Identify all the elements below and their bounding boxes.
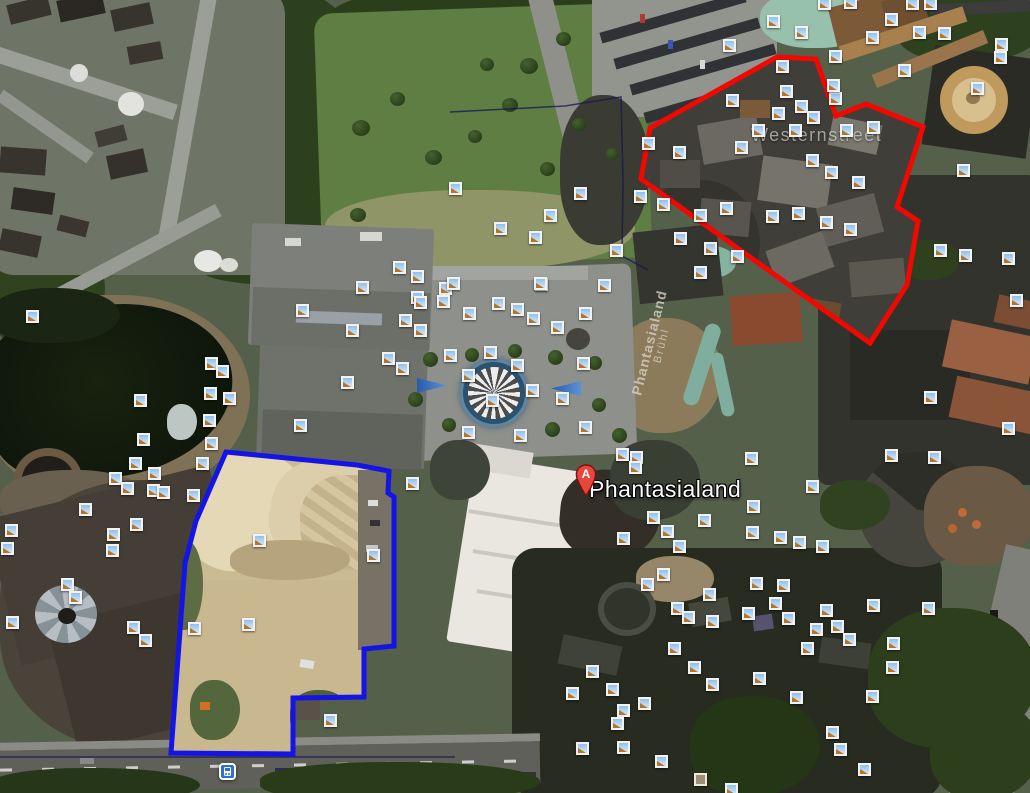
tree [390,92,405,106]
photo-icon[interactable] [61,578,74,591]
photo-icon[interactable] [629,461,642,474]
photo-icon[interactable] [694,209,707,222]
photo-icon[interactable] [463,307,476,320]
photo-icon[interactable] [747,500,760,513]
photo-icon[interactable] [69,591,82,604]
bus-glyph [224,767,231,776]
tree [465,348,479,362]
photo-icon[interactable] [806,154,819,167]
photo-icon[interactable] [79,503,92,516]
photo-icon[interactable] [449,182,462,195]
umbrella [948,524,957,533]
photo-icon[interactable] [825,166,838,179]
photo-icon[interactable] [720,202,733,215]
tree [423,352,438,367]
photo-icon[interactable] [204,387,217,400]
photo-icon[interactable] [789,124,802,137]
tree [425,150,442,165]
building-roof-detail [360,232,382,241]
photo-icon[interactable] [534,277,547,290]
street-label: Westernstreet [751,125,882,146]
photo-icon[interactable] [494,222,507,235]
tree [592,398,606,412]
tree [520,58,538,74]
photo-icon[interactable] [1002,252,1015,265]
photo-icon[interactable] [725,783,738,793]
photo-icon[interactable] [661,525,674,538]
photo-icon[interactable] [657,198,670,211]
satellite-map-view[interactable]: Phantasialand Brühl Westernstreet A Phan… [0,0,1030,793]
photo-icon[interactable] [772,107,785,120]
photo-icon[interactable] [130,518,143,531]
photo-icon[interactable] [341,376,354,389]
tree [442,418,456,432]
photo-icon[interactable] [766,210,779,223]
photo-icon[interactable] [844,223,857,236]
photo-icon[interactable] [6,616,19,629]
photo-icon[interactable] [617,532,630,545]
tree [502,98,518,112]
photo-icon[interactable] [782,612,795,625]
photo-icon[interactable] [834,743,847,756]
building-roof [729,292,802,347]
photo-icon[interactable] [188,622,201,635]
photo-icon[interactable] [704,242,717,255]
photo-icon[interactable] [887,637,900,650]
photo-icon[interactable] [913,26,926,39]
photo-icon[interactable] [566,687,579,700]
photo-icon[interactable] [694,266,707,279]
tree [545,422,560,437]
photo-icon[interactable] [827,79,840,92]
photo-icon[interactable] [187,489,200,502]
photo-icon[interactable] [294,419,307,432]
photo-icon[interactable] [616,448,629,461]
photo-icon[interactable] [688,661,701,674]
photo-icon[interactable] [437,295,450,308]
photo-icon[interactable] [858,763,871,776]
photo-icon[interactable] [242,618,255,631]
photo-icon[interactable] [826,726,839,739]
photo-icon[interactable] [396,362,409,375]
photo-icon[interactable] [807,111,820,124]
photo-icon[interactable] [723,39,736,52]
photo-icon[interactable] [655,755,668,768]
tree [540,162,555,176]
photo-icon[interactable] [924,391,937,404]
photo-icon[interactable] [393,261,406,274]
photo-icon[interactable] [959,249,972,262]
bus-stop-icon[interactable] [219,763,236,780]
photo-icon[interactable] [576,742,589,755]
photo-icon[interactable] [484,346,497,359]
photo-icon[interactable] [745,452,758,465]
building-roof [70,64,88,82]
car [700,60,705,69]
photo-icon[interactable] [216,365,229,378]
photo-icon[interactable] [938,27,951,40]
photo-icon[interactable] [617,741,630,754]
photo-icon[interactable] [866,690,879,703]
photo-icon[interactable] [642,137,655,150]
photo-icon[interactable] [253,534,266,547]
photo-icon[interactable] [444,349,457,362]
photo-icon[interactable] [611,717,624,730]
photo-icon[interactable] [205,437,218,450]
photo-icon[interactable] [706,678,719,691]
photo-icon[interactable] [774,531,787,544]
photo-icon[interactable] [367,549,380,562]
terrain-forest [930,700,1030,793]
photo-icon[interactable] [706,615,719,628]
car [80,758,94,764]
photo-icon[interactable] [928,451,941,464]
photo-icon[interactable] [698,514,711,527]
photo-icon[interactable] [598,279,611,292]
photo-icon[interactable] [5,524,18,537]
photo-icon[interactable] [203,414,216,427]
building-dome [566,328,590,350]
photo-icon[interactable] [529,231,542,244]
photo-icon[interactable] [382,352,395,365]
photo-icon[interactable] [829,50,842,63]
photo-icon[interactable] [795,26,808,39]
photo-icon[interactable] [792,207,805,220]
photo-icon[interactable] [922,602,935,615]
umbrella [958,508,967,517]
photo-icon[interactable] [617,704,630,717]
tree [408,392,423,407]
photo-icon[interactable] [906,0,919,10]
photo-icon[interactable] [852,176,865,189]
photo-icon[interactable] [934,244,947,257]
car [668,40,673,49]
tree [548,350,563,365]
photo-icon[interactable] [885,13,898,26]
photo-icon[interactable] [752,124,765,137]
photo-icon[interactable] [223,392,236,405]
photo-icon[interactable] [574,187,587,200]
photo-icon[interactable] [818,0,831,10]
photo-icon[interactable] [137,433,150,446]
tree [572,118,586,131]
photo-icon[interactable] [638,697,651,710]
building-roof [0,146,47,175]
tree [352,120,370,136]
photo-icon[interactable] [820,216,833,229]
photo-icon[interactable] [106,544,119,557]
photo-icon[interactable] [634,190,647,203]
photo-icon[interactable] [767,15,780,28]
photo-icon[interactable] [486,394,499,407]
photo-icon[interactable] [148,467,161,480]
photo-icon[interactable] [673,146,686,159]
photo-icon[interactable] [606,683,619,696]
tree [588,356,602,370]
photo-icon[interactable] [586,665,599,678]
photo-icon[interactable] [746,526,759,539]
photo-icon[interactable] [750,577,763,590]
photo-icon[interactable] [1010,294,1023,307]
photo-icon[interactable] [462,369,475,382]
terrain-forest [690,696,820,793]
photo-icon[interactable] [829,92,842,105]
tree [468,130,482,143]
photo-icon[interactable] [1,542,14,555]
photo-icon[interactable] [867,599,880,612]
photo-icon[interactable] [579,307,592,320]
photo-icon[interactable] [462,426,475,439]
small-photo-marker-icon[interactable] [694,773,707,786]
photo-icon[interactable] [196,457,209,470]
photo-icon[interactable] [526,384,539,397]
tree [612,428,627,443]
photo-icon[interactable] [139,634,152,647]
photo-icon[interactable] [801,642,814,655]
photo-icon[interactable] [129,457,142,470]
photo-icon[interactable] [674,232,687,245]
photo-icon[interactable] [107,528,120,541]
photo-icon[interactable] [790,691,803,704]
photo-icon[interactable] [776,60,789,73]
photo-icon[interactable] [831,620,844,633]
photo-icon[interactable] [793,536,806,549]
pin-letter: A [575,467,597,481]
umbrella [972,520,981,529]
photo-icon[interactable] [447,277,460,290]
photo-icon[interactable] [527,312,540,325]
car [640,14,645,23]
photo-icon[interactable] [641,578,654,591]
tree [556,32,571,46]
photo-icon[interactable] [867,121,880,134]
photo-icon[interactable] [769,597,782,610]
photo-icon[interactable] [544,209,557,222]
photo-icon[interactable] [994,51,1007,64]
photo-icon[interactable] [411,270,424,283]
photo-icon[interactable] [551,321,564,334]
photo-icon[interactable] [866,31,879,44]
photo-icon[interactable] [840,124,853,137]
photo-icon[interactable] [843,633,856,646]
photo-icon[interactable] [753,672,766,685]
photo-icon[interactable] [121,482,134,495]
building-roof [118,92,144,116]
photo-icon[interactable] [492,297,505,310]
tree [350,208,366,222]
photo-icon[interactable] [346,324,359,337]
terrain-residential [0,0,285,275]
photo-icon[interactable] [610,244,623,257]
photo-icon[interactable] [886,661,899,674]
photo-icon[interactable] [682,611,695,624]
photo-icon[interactable] [157,486,170,499]
photo-icon[interactable] [971,82,984,95]
photo-icon[interactable] [406,477,419,490]
photo-icon[interactable] [356,281,369,294]
photo-icon[interactable] [134,394,147,407]
photo-icon[interactable] [26,310,39,323]
location-pin-a-icon[interactable]: A [575,464,597,497]
photo-icon[interactable] [742,607,755,620]
tree [606,148,619,160]
photo-icon[interactable] [806,480,819,493]
photo-icon[interactable] [726,94,739,107]
photo-icon[interactable] [414,296,427,309]
photo-icon[interactable] [511,359,524,372]
photo-icon[interactable] [957,164,970,177]
tree [480,58,494,71]
photo-icon[interactable] [668,642,681,655]
photo-icon[interactable] [647,511,660,524]
tent-roof [220,258,238,272]
tent-roof [194,250,222,272]
photo-icon[interactable] [657,568,670,581]
photo-icon[interactable] [731,250,744,263]
building-roof-detail [285,238,301,246]
building-roof [752,614,774,632]
terrain-forest [260,762,540,793]
photo-icon[interactable] [810,623,823,636]
photo-icon[interactable] [816,540,829,553]
photo-icon[interactable] [1002,422,1015,435]
photo-icon[interactable] [579,421,592,434]
photo-icon[interactable] [995,38,1008,51]
photo-icon[interactable] [324,714,337,727]
photo-icon[interactable] [780,85,793,98]
photo-icon[interactable] [924,0,937,10]
photo-icon[interactable] [511,303,524,316]
photo-icon[interactable] [127,621,140,634]
photo-icon[interactable] [577,357,590,370]
photo-icon[interactable] [514,429,527,442]
photo-icon[interactable] [820,604,833,617]
photo-icon[interactable] [777,579,790,592]
photo-icon[interactable] [844,0,857,9]
photo-icon[interactable] [414,324,427,337]
photo-icon[interactable] [399,314,412,327]
glass-pyramid-center [58,608,76,624]
photo-icon[interactable] [735,141,748,154]
photo-icon[interactable] [296,304,309,317]
tree [508,344,522,358]
photo-icon[interactable] [673,540,686,553]
photo-icon[interactable] [885,449,898,462]
place-label[interactable]: Phantasialand [589,476,741,503]
photo-icon[interactable] [703,588,716,601]
photo-icon[interactable] [898,64,911,77]
photo-icon[interactable] [556,392,569,405]
